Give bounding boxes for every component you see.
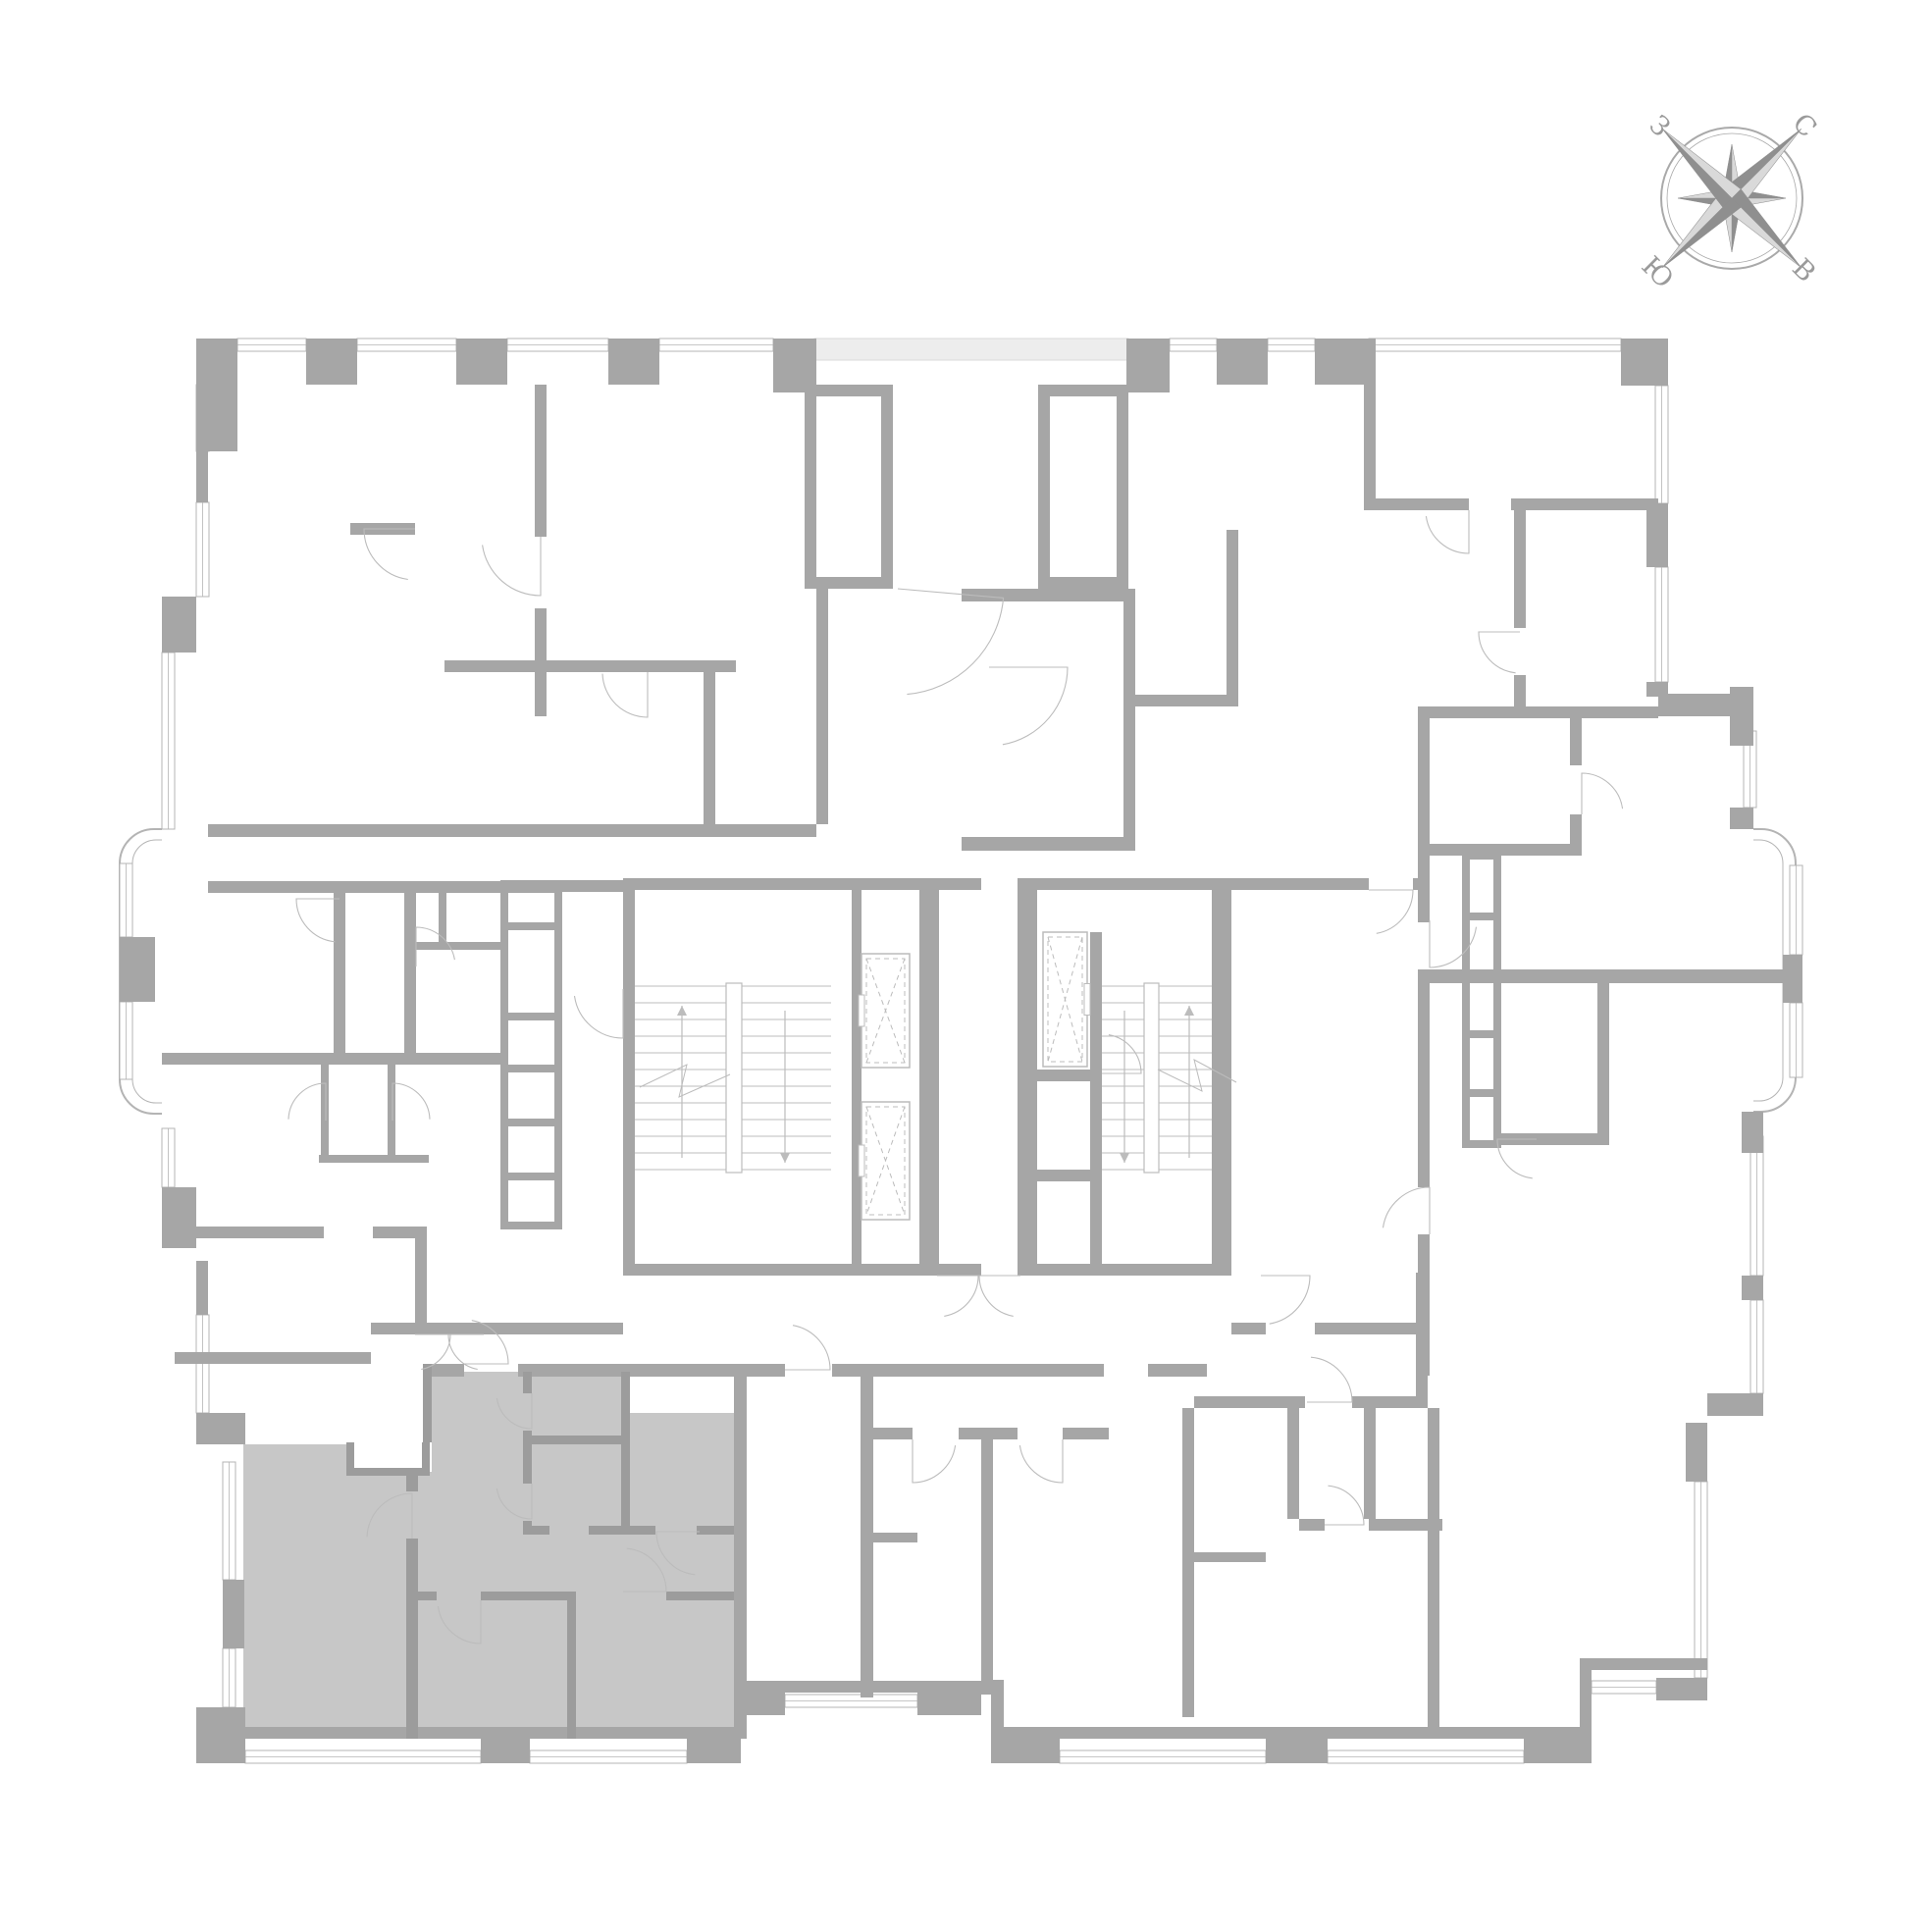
apartment-interior-wall: [523, 1372, 532, 1393]
structural-pillar: [1742, 1276, 1763, 1300]
stair-stringer: [726, 983, 742, 1173]
apartment-interior-wall: [481, 1592, 567, 1600]
window: [1655, 567, 1668, 682]
window: [785, 1695, 917, 1707]
stair-direction-arrowhead: [780, 1153, 790, 1163]
elevator-shaft: [1043, 932, 1090, 1067]
structural-pillar: [741, 1693, 785, 1715]
shaft-ladders-layer: [500, 852, 1501, 1229]
door-swing: [483, 537, 541, 596]
shaft-rung: [500, 1013, 562, 1020]
wall: [371, 1323, 623, 1334]
apartment-interior-wall: [621, 1372, 630, 1534]
shaft-rung: [1462, 852, 1501, 860]
wall: [1050, 385, 1117, 396]
door-swing: [1369, 890, 1413, 933]
window: [237, 339, 306, 351]
wall: [208, 824, 816, 837]
door-swing: [1582, 773, 1623, 814]
apartment-interior-wall: [589, 1526, 655, 1535]
shaft-rung: [1462, 1030, 1501, 1038]
highlighted-apartment-layer: [243, 1372, 734, 1739]
wall: [1063, 1428, 1109, 1439]
stair-direction-arrowhead: [677, 1006, 687, 1016]
wall: [1123, 589, 1135, 851]
structural-pillar: [196, 339, 237, 451]
wall: [816, 589, 828, 824]
service-shaft-column: [1462, 852, 1501, 1148]
apartment-interior-wall: [418, 1592, 437, 1600]
wall: [959, 1428, 1018, 1439]
wall: [1050, 577, 1117, 589]
wall: [1418, 706, 1430, 922]
door-swing: [288, 1083, 326, 1121]
wall: [175, 1352, 371, 1364]
window: [1655, 386, 1668, 503]
window: [1369, 339, 1621, 351]
structural-pillar: [1217, 339, 1268, 385]
wall: [432, 1364, 464, 1377]
window: [120, 1002, 132, 1079]
door-swing: [989, 667, 1068, 745]
apartment-interior-wall: [346, 1468, 430, 1476]
apartment-interior-wall: [523, 1526, 549, 1535]
wall: [1148, 1364, 1207, 1377]
structural-pillar: [1004, 1739, 1060, 1763]
wall: [183, 1227, 324, 1238]
wall: [1212, 878, 1231, 1276]
partition-wall: [1194, 1552, 1266, 1562]
window: [659, 339, 773, 351]
shaft-rung: [1462, 971, 1501, 979]
structural-pillar: [481, 1739, 530, 1763]
door-swing: [296, 899, 339, 942]
window: [1268, 339, 1315, 351]
apartment-interior-wall: [532, 1436, 621, 1444]
wall: [1004, 1727, 1580, 1739]
wall: [1597, 983, 1609, 1133]
highlighted-apartment[interactable]: [243, 1372, 734, 1739]
structural-pillar: [196, 451, 208, 502]
door-swing: [898, 589, 1004, 695]
wall: [962, 837, 1125, 851]
partition-wall: [388, 1065, 395, 1158]
structural-pillar: [1315, 339, 1369, 385]
wall: [1231, 878, 1369, 890]
wall: [1018, 1264, 1231, 1276]
wall: [623, 890, 635, 1276]
shaft-rung: [500, 1119, 562, 1126]
wall: [1514, 675, 1526, 716]
structural-pillar: [162, 1187, 196, 1248]
structural-pillar: [456, 339, 507, 385]
wall: [1514, 510, 1526, 628]
structural-pillar: [1742, 1112, 1763, 1153]
window: [223, 1648, 235, 1707]
door-swing: [1384, 1187, 1431, 1234]
structural-pillar: [306, 339, 357, 385]
structural-pillar: [1266, 1739, 1328, 1763]
structural-pillar: [1580, 1673, 1592, 1763]
partition-wall: [1037, 1070, 1102, 1081]
shaft-rung: [500, 1065, 562, 1072]
apartment-interior-wall: [423, 1364, 432, 1442]
structural-pillar: [608, 339, 659, 385]
wall: [244, 1727, 734, 1739]
window: [120, 863, 132, 937]
wall: [1376, 498, 1469, 510]
stair-stringer: [1144, 983, 1159, 1173]
shaft-rung: [500, 922, 562, 930]
partition-wall: [319, 1155, 429, 1163]
shaft-rung: [500, 1222, 562, 1229]
structural-pillar: [1621, 339, 1668, 386]
wall: [1299, 1519, 1325, 1531]
door-swing: [979, 1276, 1020, 1316]
wall: [873, 1428, 913, 1439]
window: [1060, 1750, 1266, 1763]
wall: [1511, 498, 1658, 510]
wall: [704, 672, 715, 824]
window: [1328, 1750, 1524, 1763]
compass-rose: СВЮЗ: [1569, 37, 1895, 363]
shaft-rung: [1462, 1140, 1501, 1148]
entrance-canopy: [814, 339, 1128, 360]
structural-pillar: [1730, 687, 1753, 746]
door-swing: [364, 529, 415, 580]
window: [530, 1750, 687, 1763]
wall: [873, 1364, 1104, 1377]
structural-pillar: [1646, 682, 1668, 697]
wall: [1194, 1396, 1305, 1408]
apartment-interior-wall: [406, 1592, 418, 1739]
wall: [1418, 969, 1430, 1187]
structural-pillar: [1707, 1393, 1763, 1416]
structural-pillar: [162, 597, 196, 653]
partition-wall: [852, 890, 862, 1264]
structural-pillar: [1126, 339, 1170, 392]
stair-direction-arrowhead: [1184, 1006, 1194, 1016]
window: [357, 339, 456, 351]
wall: [1418, 1234, 1430, 1376]
wall: [816, 385, 881, 396]
wall: [816, 577, 881, 589]
structural-pillar: [687, 1739, 741, 1763]
wall: [861, 1364, 873, 1697]
partition-wall: [410, 942, 500, 950]
wall: [1018, 890, 1037, 1276]
structural-pillar: [917, 1693, 981, 1715]
wall: [1580, 1658, 1707, 1670]
stair-direction-arrowhead: [1120, 1153, 1129, 1163]
structural-pillar: [223, 1707, 244, 1739]
wall: [1117, 385, 1128, 589]
structural-pillar: [773, 339, 816, 392]
shaft-rung: [1462, 1089, 1501, 1097]
window: [1790, 865, 1802, 955]
door-swing: [1307, 1357, 1352, 1402]
wall: [1428, 1408, 1439, 1737]
shaft-rung: [500, 880, 562, 888]
structural-pillar: [196, 1413, 245, 1444]
partition-wall: [1090, 932, 1102, 1076]
wall: [919, 878, 939, 1276]
wall: [535, 385, 547, 537]
apartment-interior-wall: [406, 1539, 418, 1592]
stairwell: [1102, 983, 1212, 1173]
structural-pillar: [1524, 1739, 1580, 1763]
wall: [1364, 1408, 1376, 1519]
door-swing: [1261, 1276, 1310, 1324]
elevator-door-mark: [859, 995, 864, 1026]
wall: [1227, 530, 1238, 706]
stairwell: [635, 983, 831, 1173]
window: [245, 1750, 481, 1763]
wall: [334, 893, 345, 1053]
elevator-door-mark: [859, 1145, 864, 1176]
wall: [1570, 814, 1582, 856]
window: [507, 339, 608, 351]
shaft-rail: [1462, 852, 1470, 1148]
structural-pillar: [196, 1261, 208, 1315]
partition-wall: [321, 1065, 329, 1158]
structural-pillar: [1656, 1678, 1707, 1700]
wall: [881, 385, 893, 589]
wall: [444, 660, 736, 672]
wall: [1315, 1323, 1416, 1334]
wall: [1182, 1408, 1194, 1717]
door-swing: [1479, 632, 1520, 673]
door-swing: [602, 672, 648, 717]
elevator-shaft: [859, 1102, 910, 1220]
wall: [962, 589, 1125, 601]
window: [162, 653, 175, 829]
door-swing: [1019, 1439, 1063, 1483]
window: [1790, 1003, 1802, 1077]
entrance-canopy-layer: [814, 339, 1128, 360]
window: [162, 1128, 175, 1187]
shaft-rail: [1493, 852, 1501, 1148]
door-swing: [392, 1083, 430, 1121]
door-swing: [575, 989, 624, 1038]
window: [1695, 1482, 1707, 1678]
door-swing: [785, 1326, 830, 1370]
door-swing: [1325, 1486, 1364, 1525]
service-shaft-column: [500, 880, 562, 1229]
structural-pillar: [120, 937, 155, 1002]
door-swing: [937, 1276, 978, 1316]
window: [1750, 1136, 1763, 1276]
apartment-interior-wall: [697, 1526, 734, 1535]
window: [1170, 339, 1217, 351]
wall: [1231, 1323, 1266, 1334]
wall: [404, 888, 416, 1053]
wall: [746, 1681, 991, 1693]
wall: [623, 1264, 981, 1276]
wall: [518, 1364, 628, 1377]
wall: [373, 1227, 427, 1238]
wall: [415, 1238, 427, 1325]
wall: [1038, 385, 1050, 589]
wall: [1018, 878, 1231, 890]
structural-pillar: [1686, 1423, 1707, 1482]
door-swing: [1102, 1035, 1141, 1073]
wall: [981, 1439, 993, 1695]
wall: [1135, 695, 1227, 706]
apartment-interior-wall: [523, 1431, 532, 1484]
partition-wall: [873, 1533, 917, 1542]
floor-plan-page: СВЮЗ: [0, 0, 1932, 1932]
window: [223, 1462, 235, 1580]
wall: [162, 1053, 500, 1065]
wall: [1430, 706, 1658, 718]
elevator-door-mark: [1084, 984, 1090, 1016]
floor-plan-svg: СВЮЗ: [0, 0, 1932, 1932]
wall: [562, 880, 623, 892]
apartment-interior-wall: [567, 1592, 576, 1739]
partition-wall: [1090, 1081, 1102, 1264]
window: [196, 502, 209, 597]
structural-pillar: [991, 1680, 1004, 1763]
compass-rose-group: СВЮЗ: [1569, 37, 1895, 363]
shaft-rung: [1462, 913, 1501, 920]
partition-wall: [1037, 1170, 1090, 1181]
structural-pillar: [1730, 808, 1753, 829]
shaft-rung: [500, 1173, 562, 1180]
window: [1750, 1300, 1763, 1393]
wall: [1369, 1519, 1442, 1531]
structural-pillar: [1783, 955, 1802, 1003]
door-swing: [1426, 510, 1469, 553]
structural-pillar: [223, 1580, 244, 1648]
wall: [628, 1364, 785, 1377]
structural-pillar: [1646, 503, 1668, 567]
wall: [1287, 1408, 1299, 1519]
window: [1592, 1681, 1656, 1694]
elevator-shaft: [859, 954, 910, 1068]
wall: [805, 385, 816, 589]
apartment-interior-wall: [666, 1592, 734, 1600]
door-swing: [913, 1439, 956, 1483]
